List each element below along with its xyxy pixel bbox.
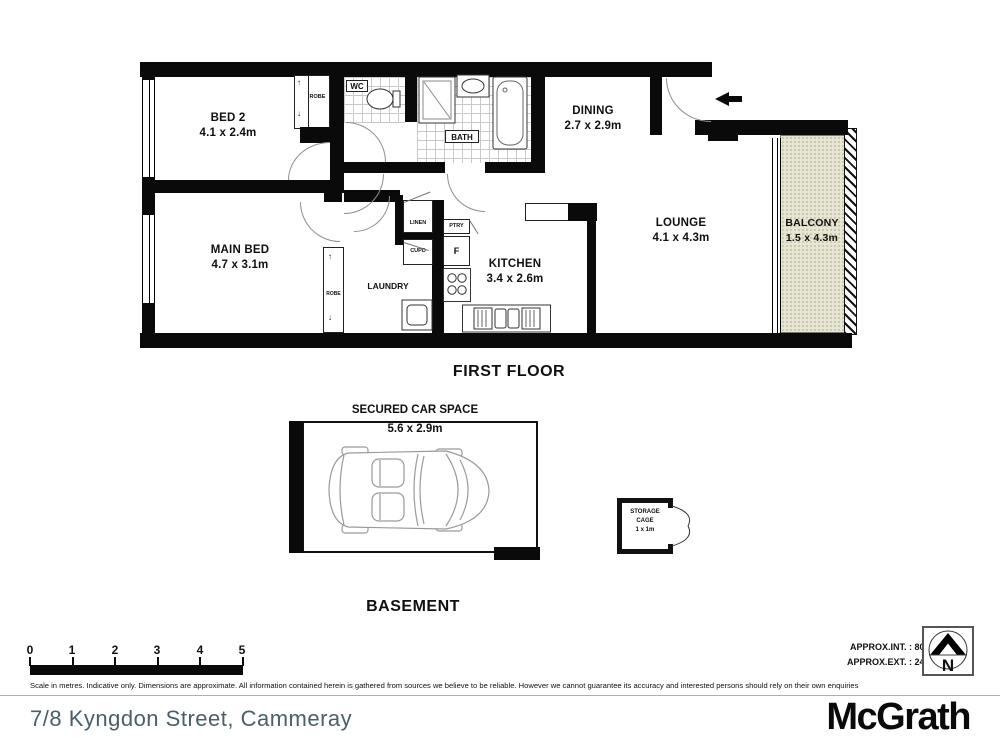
scale-tick-label: 4 [192, 643, 208, 657]
storage-line: CAGE [622, 517, 668, 526]
room-name: LOUNGE [621, 216, 741, 231]
toilet-icon [344, 77, 406, 125]
cupd-label: CUPD [403, 248, 433, 254]
sliding-door-arrow-icon: ↑ [328, 253, 332, 261]
car-space-title: SECURED CAR SPACE [300, 404, 530, 416]
north-label: N [942, 656, 954, 674]
bed2-door-arc [288, 142, 330, 180]
kitchen-room-label: KITCHEN 3.4 x 2.6m [455, 257, 575, 287]
main-bed-room-label: MAIN BED 4.7 x 3.1m [180, 243, 300, 273]
room-dims: 4.1 x 2.4m [170, 126, 286, 141]
room-dims: 4.7 x 3.1m [180, 258, 300, 273]
room-name: BALCONY [775, 216, 849, 231]
scale-tick-label: 5 [234, 643, 250, 657]
footer-address: 7/8 Kyngdon Street, Cammeray [30, 706, 352, 732]
bed2-window [142, 80, 155, 177]
balcony-room-label: BALCONY 1.5 x 4.3m [775, 216, 849, 246]
disclaimer-text: Scale in metres. Indicative only. Dimens… [30, 681, 975, 690]
brand-logo: McGrath [780, 698, 970, 736]
wall [330, 77, 344, 193]
pantry-label: PTRY [443, 223, 470, 229]
room-dims: 4.1 x 4.3m [621, 231, 741, 246]
linen-label: LINEN [403, 220, 433, 226]
scale-tick-label: 0 [22, 643, 38, 657]
scale-tick-label: 3 [149, 643, 165, 657]
scale-bar-body [30, 665, 243, 675]
floorplan-page: { "plan": { "first_floor_title": "FIRST … [0, 0, 1000, 750]
approx-external: APPROX.EXT. : 24 m² [760, 655, 938, 670]
wall [568, 203, 597, 221]
wall [140, 333, 852, 348]
scale-tick-label: 2 [107, 643, 123, 657]
bath-label: BATH [445, 130, 479, 143]
storage-cage-label: STORAGE CAGE 1 x 1m [622, 508, 668, 535]
car-top-view-icon [320, 444, 500, 536]
room-dims: 1.5 x 4.3m [775, 231, 849, 246]
first-floor-plan: ROBE ↑ ↓ ROBE ↑ ↓ WC BATH LINEN CUPD LAU… [140, 52, 858, 348]
entry-door-arc [666, 78, 711, 122]
linen-closet [403, 200, 433, 233]
room-dims: 3.4 x 2.6m [455, 272, 575, 287]
main-robe [323, 247, 344, 333]
wall [405, 72, 417, 122]
sliding-door-arrow-icon: ↓ [328, 314, 332, 322]
storage-line: 1 x 1m [622, 526, 668, 535]
storage-line: STORAGE [622, 508, 668, 517]
bed2-room-label: BED 2 4.1 x 2.4m [170, 111, 286, 141]
area-summary: APPROX.INT. : 80 m² APPROX.EXT. : 24 m² [760, 640, 938, 670]
wall [708, 135, 738, 141]
kitchen-sink-icon [462, 304, 552, 333]
lounge-room-label: LOUNGE 4.1 x 4.3m [621, 216, 741, 246]
sliding-door-arrow-icon: ↑ [297, 79, 301, 87]
main-bed-door-arc [300, 202, 340, 242]
wall [587, 221, 596, 333]
bath-door-arc [447, 174, 485, 212]
wall [324, 180, 342, 202]
laundry-tub-icon [401, 299, 433, 331]
laundry-label: LAUNDRY [342, 281, 434, 291]
basement-title: BASEMENT [330, 598, 496, 616]
robe-bed2-label: ROBE [306, 94, 329, 100]
wall [142, 180, 336, 193]
wall [142, 62, 155, 80]
main-bed-window [142, 215, 155, 303]
north-arrow-icon: N [924, 628, 972, 674]
wall [300, 127, 330, 143]
room-name: KITCHEN [455, 257, 575, 272]
sliding-door-arrow-icon: ↓ [297, 110, 301, 118]
wall [695, 120, 848, 135]
dining-room-label: DINING 2.7 x 2.9m [533, 104, 653, 134]
room-name: BED 2 [170, 111, 286, 126]
storage-cage: STORAGE CAGE 1 x 1m [617, 498, 673, 554]
wc-door-arc [346, 122, 386, 162]
robe-divider [308, 75, 309, 129]
room-dims: 2.7 x 2.9m [533, 119, 653, 134]
laundry-door-arc [354, 196, 390, 232]
entry-arrow-shaft [728, 96, 742, 102]
north-indicator: N [922, 626, 974, 676]
bath-fixtures [417, 73, 531, 167]
approx-internal: APPROX.INT. : 80 m² [760, 640, 938, 655]
room-name: DINING [533, 104, 653, 119]
entry-arrow-icon [715, 92, 729, 106]
storage-doors-icon [671, 505, 697, 547]
room-name: MAIN BED [180, 243, 300, 258]
car-space-wall [494, 547, 540, 560]
robe-main-label: ROBE [323, 291, 344, 297]
scale-tick-label: 1 [64, 643, 80, 657]
first-floor-title: FIRST FLOOR [379, 363, 639, 381]
car-space-wall [289, 421, 303, 553]
fridge-label: F [443, 246, 470, 256]
pantry-door-line [469, 220, 478, 234]
